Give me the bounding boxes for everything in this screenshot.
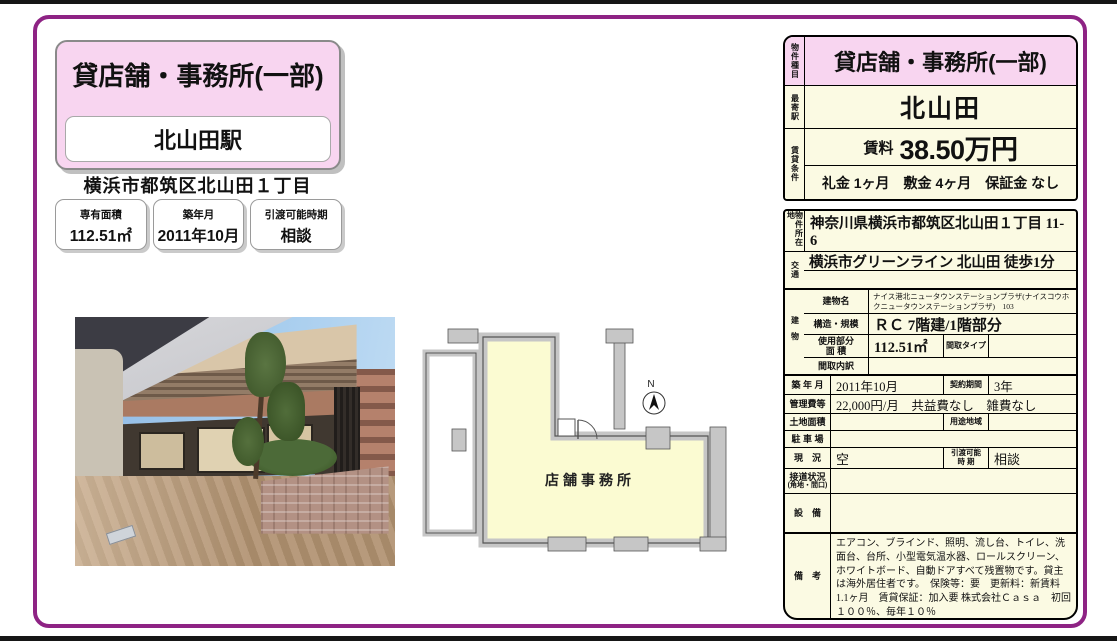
road-label-line1: 接道状況 xyxy=(789,472,825,482)
access-line1-text: 横浜市グリーンライン 北山田 徒歩1分 xyxy=(804,251,1060,272)
road-label-line2: (角地・間口) xyxy=(788,482,828,490)
area-text: 112.51㎡ xyxy=(869,336,933,357)
structure-text: ＲＣ 7階建/1階部分 xyxy=(869,314,1007,335)
layout-detail-row: 間取内訳 xyxy=(804,357,1076,374)
access-line2 xyxy=(804,271,1076,288)
stat-built-label: 築年月 xyxy=(154,207,244,222)
summary-type-label: 物件種目 xyxy=(791,43,799,79)
road-value xyxy=(830,469,1076,493)
equipment-label: 設 備 xyxy=(794,508,821,518)
row-built: 築 年 月 2011年10月 契約期間 3年 xyxy=(785,374,1076,394)
built-text: 2011年10月 xyxy=(831,376,903,395)
zoning-label: 用途地域 xyxy=(950,417,982,426)
row-parking: 駐 車 場 xyxy=(785,430,1076,447)
contract-value: 3年 xyxy=(988,376,1076,394)
stat-boxes: 専有面積 112.51㎡ 築年月 2011年10月 引渡可能時期 相談 xyxy=(55,199,342,250)
photo-tree-foliage xyxy=(267,382,305,442)
equipment-label-cell: 設 備 xyxy=(785,494,830,532)
area-row: 使用部分 面 積 112.51㎡ 間取タイプ xyxy=(804,334,1076,357)
summary-row-type: 物件種目 貸店舗・事務所(一部) xyxy=(785,37,1076,85)
detail-table: 物件所在地 神奈川県横浜市都筑区北山田１丁目 11-6 交通 横浜市グリーンライ… xyxy=(783,209,1078,620)
property-type-box: 貸店舗・事務所(一部) 北山田駅 xyxy=(55,40,341,170)
access-line1: 横浜市グリーンライン 北山田 徒歩1分 xyxy=(804,252,1076,270)
stat-handover: 引渡可能時期 相談 xyxy=(250,199,342,250)
zoning-value xyxy=(988,414,1076,430)
area-label-cell: 使用部分 面 積 xyxy=(804,335,868,357)
floorplan-entry-closet xyxy=(558,419,575,436)
summary-type-label-cell: 物件種目 xyxy=(785,37,805,85)
summary-terms-label-cell: 賃貸条件 xyxy=(785,129,805,199)
building-name-row: 建物名 ナイス港北ニュータウンステーションプラザ(ナイスコウホクニュータウンステ… xyxy=(804,290,1076,313)
structure-label-cell: 構造・規模 xyxy=(804,314,868,334)
equipment-value xyxy=(830,494,1076,532)
floorplan-wall-cap xyxy=(606,329,633,343)
remarks-value: エアコン、ブラインド、照明、流し台、トイレ、洗面台、台所、小型電気温水器、ロール… xyxy=(830,534,1076,618)
location-label-cell: 物件所在地 xyxy=(785,211,804,251)
property-type-title: 貸店舗・事務所(一部) xyxy=(57,56,339,93)
address-line: 横浜市都筑区北山田１丁目 xyxy=(45,172,350,198)
stat-area-label: 専有面積 xyxy=(56,207,146,222)
stat-area: 専有面積 112.51㎡ xyxy=(55,199,147,250)
access-label: 交通 xyxy=(791,261,799,279)
summary-row-station: 最寄駅 北山田 xyxy=(785,85,1076,128)
access-line1-row: 横浜市グリーンライン 北山田 徒歩1分 xyxy=(804,252,1076,270)
access-line2-row xyxy=(804,270,1076,288)
photo-tree-foliage xyxy=(232,417,264,467)
summary-terms-values: 賃料 38.50万円 礼金 1ヶ月 敷金 4ヶ月 保証金 なし xyxy=(805,129,1076,199)
floorplan-bottom-stub xyxy=(614,537,648,551)
access-values: 横浜市グリーンライン 北山田 徒歩1分 xyxy=(804,252,1076,288)
structure-row: 構造・規模 ＲＣ 7階建/1階部分 xyxy=(804,313,1076,334)
parking-value xyxy=(830,431,1076,447)
layout-type-value xyxy=(988,335,1076,357)
fees-label: 管理費等 xyxy=(789,399,825,409)
summary-box: 物件種目 貸店舗・事務所(一部) 最寄駅 北山田 賃貸条件 賃料 38.50万円… xyxy=(783,35,1078,201)
built-label-cell: 築 年 月 xyxy=(785,376,830,394)
land-label-cell: 土地面積 xyxy=(785,414,830,430)
floorplan-side-room xyxy=(426,353,476,533)
row-fees: 管理費等 22,000円/月 共益費なし 雑費なし xyxy=(785,394,1076,413)
exterior-photo xyxy=(75,317,395,566)
stat-handover-label: 引渡可能時期 xyxy=(251,207,341,222)
rent-value: 38.50万円 xyxy=(899,128,1017,167)
handover-label-line2: 時 期 xyxy=(957,458,974,467)
stat-built-value: 2011年10月 xyxy=(154,224,244,246)
parking-label-cell: 駐 車 場 xyxy=(785,431,830,447)
building-label-cell: 建物 xyxy=(785,290,804,374)
row-location: 物件所在地 神奈川県横浜市都筑区北山田１丁目 11-6 xyxy=(785,211,1076,251)
parking-label: 駐 車 場 xyxy=(791,434,823,444)
layout-detail-value xyxy=(868,358,1076,374)
summary-station-label: 最寄駅 xyxy=(791,94,799,121)
road-label-cell: 接道状況 (角地・間口) xyxy=(785,469,830,493)
area-label-line2: 面 積 xyxy=(826,346,847,356)
contract-label: 契約期間 xyxy=(950,380,982,389)
built-label: 築 年 月 xyxy=(791,380,823,390)
stat-built: 築年月 2011年10月 xyxy=(153,199,245,250)
layout-detail-label: 間取内訳 xyxy=(818,361,854,371)
floorplan-wall-stub xyxy=(448,329,478,343)
floorplan-office-area xyxy=(483,337,708,543)
summary-rent-row: 賃料 38.50万円 xyxy=(805,129,1076,166)
location-value: 神奈川県横浜市都筑区北山田１丁目 11-6 xyxy=(804,211,1076,251)
floorplan-wall-notch xyxy=(646,427,670,449)
floorplan-pillar xyxy=(452,429,466,451)
building-name-label: 建物名 xyxy=(822,296,849,306)
contract-text: 3年 xyxy=(989,376,1018,395)
location-label: 物件所在地 xyxy=(787,211,803,251)
area-value: 112.51㎡ xyxy=(868,335,943,357)
building-label: 建物 xyxy=(791,316,799,348)
location-text: 神奈川県横浜市都筑区北山田１丁目 11-6 xyxy=(805,212,1076,250)
row-building-group: 建物 建物名 ナイス港北ニュータウンステーションプラザ(ナイスコウホクニュータウ… xyxy=(785,288,1076,374)
area-label-line1: 使用部分 xyxy=(818,336,854,346)
summary-type-value: 貸店舗・事務所(一部) xyxy=(805,37,1076,85)
layout-type-label-cell: 間取タイプ xyxy=(943,335,988,357)
handover-label-cell: 引渡可能 時 期 xyxy=(943,448,988,468)
status-value: 空 xyxy=(830,448,943,468)
compass-north-label: N xyxy=(647,379,654,390)
building-name-text: ナイス港北ニュータウンステーションプラザ(ナイスコウホクニュータウンステーション… xyxy=(869,291,1076,313)
summary-terms-label: 賃貸条件 xyxy=(791,146,799,182)
floorplan-right-wall xyxy=(710,427,726,549)
building-rows: 建物名 ナイス港北ニュータウンステーションプラザ(ナイスコウホクニュータウンステ… xyxy=(804,290,1076,374)
zoning-label-cell: 用途地域 xyxy=(943,414,988,430)
status-text: 空 xyxy=(831,449,854,468)
row-status: 現 況 空 引渡可能 時 期 相談 xyxy=(785,447,1076,468)
building-name-label-cell: 建物名 xyxy=(804,290,868,313)
floorplan-corridor-wall xyxy=(614,333,625,429)
stat-area-value: 112.51㎡ xyxy=(56,224,146,246)
summary-row-terms: 賃貸条件 賃料 38.50万円 礼金 1ヶ月 敷金 4ヶ月 保証金 なし xyxy=(785,128,1076,199)
layout-detail-label-cell: 間取内訳 xyxy=(804,358,868,374)
summary-station-value: 北山田 xyxy=(805,86,1076,128)
scan-edge-top xyxy=(0,0,1117,4)
station-name-box: 北山田駅 xyxy=(65,116,331,162)
fees-label-cell: 管理費等 xyxy=(785,395,830,413)
remarks-text: エアコン、ブラインド、照明、流し台、トイレ、洗面台、台所、小型電気温水器、ロール… xyxy=(831,534,1076,620)
rent-label: 賃料 xyxy=(863,137,893,158)
remarks-label-cell: 備 考 xyxy=(785,534,830,618)
built-value: 2011年10月 xyxy=(830,376,943,394)
floorplan-svg: N 店舗事務所 xyxy=(418,323,766,581)
row-access: 交通 横浜市グリーンライン 北山田 徒歩1分 xyxy=(785,251,1076,288)
access-label-cell: 交通 xyxy=(785,252,804,288)
fees-text: 22,000円/月 共益費なし 雑費なし xyxy=(831,395,1041,414)
structure-value: ＲＣ 7階建/1階部分 xyxy=(868,314,1076,334)
contract-label-cell: 契約期間 xyxy=(943,376,988,394)
photo-glass-door xyxy=(139,432,185,471)
row-remarks: 備 考 エアコン、ブラインド、照明、流し台、トイレ、洗面台、台所、小型電気温水器… xyxy=(785,532,1076,618)
floorplan-room-label: 店舗事務所 xyxy=(545,472,635,489)
handover-value: 相談 xyxy=(988,448,1076,468)
fees-value: 22,000円/月 共益費なし 雑費なし xyxy=(830,395,1076,413)
structure-label: 構造・規模 xyxy=(813,319,858,329)
scan-edge-bottom xyxy=(0,636,1117,641)
layout-type-label: 間取タイプ xyxy=(946,341,986,350)
remarks-label: 備 考 xyxy=(794,571,821,581)
handover-text: 相談 xyxy=(989,449,1025,468)
row-equipment: 設 備 xyxy=(785,493,1076,532)
land-label: 土地面積 xyxy=(789,417,825,427)
summary-station-label-cell: 最寄駅 xyxy=(785,86,805,128)
floorplan-bottom-stub xyxy=(700,537,726,551)
status-label-cell: 現 況 xyxy=(785,448,830,468)
land-value xyxy=(830,414,943,430)
row-road: 接道状況 (角地・間口) xyxy=(785,468,1076,493)
deposit-terms: 礼金 1ヶ月 敷金 4ヶ月 保証金 なし xyxy=(805,166,1076,199)
row-land: 土地面積 用途地域 xyxy=(785,413,1076,430)
stat-handover-value: 相談 xyxy=(251,224,341,246)
floorplan-bottom-stub xyxy=(548,537,586,551)
building-name-value: ナイス港北ニュータウンステーションプラザ(ナイスコウホクニュータウンステーション… xyxy=(868,290,1076,313)
floorplan: N 店舗事務所 xyxy=(418,323,766,581)
status-label: 現 況 xyxy=(794,453,821,463)
